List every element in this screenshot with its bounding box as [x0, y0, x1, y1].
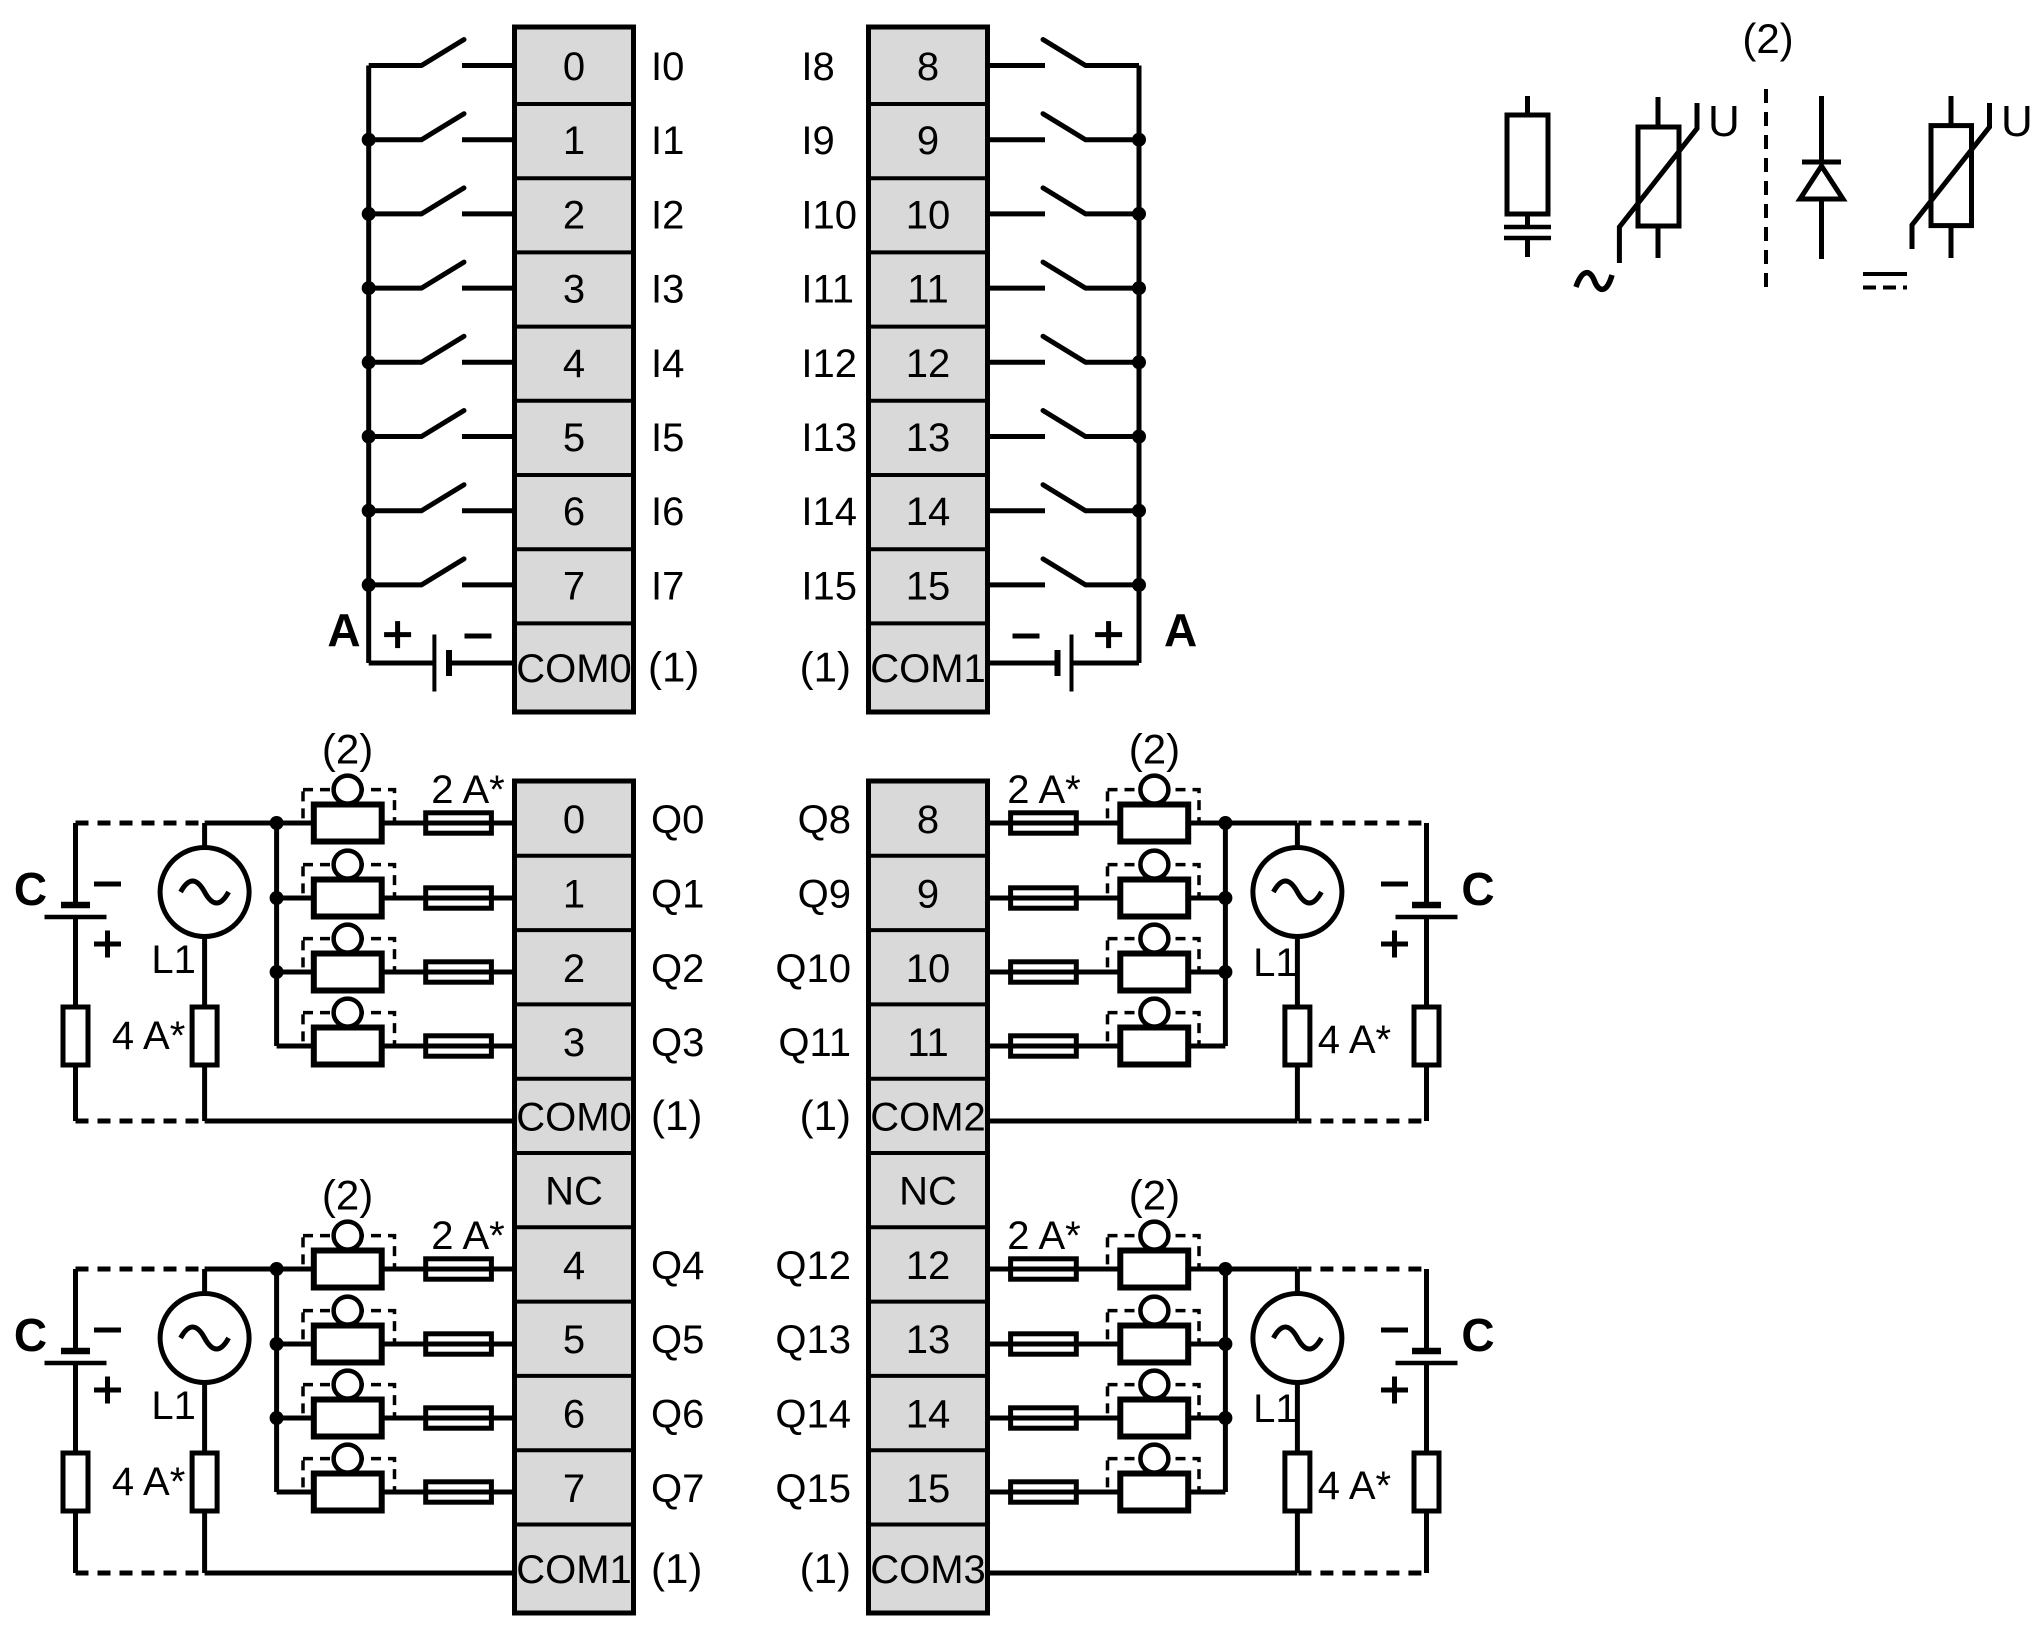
svg-text:A: A	[327, 604, 360, 656]
svg-text:Q12: Q12	[775, 1244, 851, 1288]
svg-text:Q3: Q3	[651, 1021, 704, 1065]
svg-text:8: 8	[917, 798, 939, 842]
svg-text:11: 11	[907, 1021, 949, 1065]
svg-text:NC: NC	[899, 1170, 957, 1214]
svg-text:(1): (1)	[800, 1545, 851, 1592]
svg-text:I8: I8	[801, 45, 834, 89]
svg-text:(2): (2)	[1742, 15, 1793, 62]
svg-text:2: 2	[563, 947, 585, 991]
svg-text:I2: I2	[651, 193, 684, 237]
svg-text:14: 14	[906, 490, 951, 534]
svg-text:4 A*: 4 A*	[112, 1014, 185, 1058]
svg-text:C: C	[1461, 1309, 1494, 1361]
svg-text:(2): (2)	[322, 726, 373, 773]
svg-text:I9: I9	[801, 119, 834, 163]
svg-text:I10: I10	[801, 193, 857, 237]
svg-text:4 A*: 4 A*	[1318, 1464, 1391, 1508]
svg-text:C: C	[1461, 863, 1494, 915]
svg-text:U: U	[2001, 97, 2033, 146]
svg-text:(1): (1)	[800, 644, 851, 691]
svg-text:9: 9	[917, 119, 939, 163]
svg-text:13: 13	[906, 416, 951, 460]
svg-text:L1: L1	[1253, 941, 1298, 985]
svg-text:COM1: COM1	[870, 647, 986, 691]
svg-text:1: 1	[563, 872, 585, 916]
svg-text:I5: I5	[651, 416, 684, 460]
svg-text:7: 7	[563, 1467, 585, 1511]
svg-text:4 A*: 4 A*	[1318, 1018, 1391, 1062]
svg-text:6: 6	[563, 490, 585, 534]
svg-text:2 A*: 2 A*	[431, 768, 504, 812]
svg-text:10: 10	[906, 947, 951, 991]
svg-text:2: 2	[563, 193, 585, 237]
svg-text:(1): (1)	[651, 1545, 702, 1592]
svg-text:I1: I1	[651, 119, 684, 163]
svg-text:COM2: COM2	[870, 1095, 986, 1139]
svg-text:Q5: Q5	[651, 1318, 704, 1362]
svg-text:10: 10	[906, 193, 951, 237]
svg-text:9: 9	[917, 872, 939, 916]
svg-text:(2): (2)	[322, 1172, 373, 1219]
svg-text:Q11: Q11	[778, 1021, 851, 1065]
svg-text:COM0: COM0	[516, 1095, 632, 1139]
svg-text:L1: L1	[151, 1384, 196, 1428]
svg-text:I13: I13	[801, 416, 857, 460]
svg-text:Q14: Q14	[775, 1393, 851, 1437]
svg-text:7: 7	[563, 564, 585, 608]
svg-text:2 A*: 2 A*	[431, 1214, 504, 1258]
svg-text:(1): (1)	[648, 644, 699, 691]
svg-text:12: 12	[906, 342, 951, 386]
svg-text:15: 15	[906, 564, 951, 608]
svg-text:13: 13	[906, 1318, 951, 1362]
svg-text:I6: I6	[651, 490, 684, 534]
svg-text:5: 5	[563, 1318, 585, 1362]
svg-text:Q9: Q9	[798, 872, 851, 916]
svg-text:Q2: Q2	[651, 947, 704, 991]
svg-text:I7: I7	[651, 564, 684, 608]
svg-text:I11: I11	[801, 268, 854, 312]
svg-text:0: 0	[563, 45, 585, 89]
svg-text:4: 4	[563, 342, 585, 386]
svg-text:A: A	[1164, 604, 1197, 656]
svg-text:Q4: Q4	[651, 1244, 704, 1288]
svg-text:6: 6	[563, 1393, 585, 1437]
svg-text:3: 3	[563, 1021, 585, 1065]
svg-text:I4: I4	[651, 342, 684, 386]
svg-text:15: 15	[906, 1467, 951, 1511]
svg-text:L1: L1	[1253, 1387, 1298, 1431]
svg-text:I0: I0	[651, 45, 684, 89]
svg-text:COM0: COM0	[516, 647, 632, 691]
svg-text:NC: NC	[545, 1170, 603, 1214]
svg-text:L1: L1	[151, 938, 196, 982]
svg-text:COM1: COM1	[516, 1548, 632, 1592]
svg-text:COM3: COM3	[870, 1548, 986, 1592]
svg-text:(2): (2)	[1129, 1172, 1180, 1219]
svg-text:I14: I14	[801, 490, 857, 534]
svg-text:Q7: Q7	[651, 1467, 704, 1511]
svg-text:8: 8	[917, 45, 939, 89]
svg-text:2 A*: 2 A*	[1007, 1214, 1080, 1258]
svg-text:Q1: Q1	[651, 872, 704, 916]
svg-text:4 A*: 4 A*	[112, 1460, 185, 1504]
svg-text:11: 11	[907, 268, 949, 312]
svg-text:4: 4	[563, 1244, 585, 1288]
svg-text:(1): (1)	[651, 1092, 702, 1139]
svg-text:Q0: Q0	[651, 798, 704, 842]
svg-text:3: 3	[563, 268, 585, 312]
svg-text:I12: I12	[801, 342, 857, 386]
svg-text:I15: I15	[801, 564, 857, 608]
svg-text:Q13: Q13	[775, 1318, 851, 1362]
svg-text:12: 12	[906, 1244, 951, 1288]
svg-text:U: U	[1708, 97, 1740, 146]
svg-text:5: 5	[563, 416, 585, 460]
svg-text:Q10: Q10	[775, 947, 851, 991]
svg-text:Q8: Q8	[798, 798, 851, 842]
svg-text:(2): (2)	[1129, 726, 1180, 773]
svg-text:14: 14	[906, 1393, 951, 1437]
svg-text:(1): (1)	[800, 1092, 851, 1139]
svg-text:I3: I3	[651, 268, 684, 312]
svg-text:0: 0	[563, 798, 585, 842]
svg-text:Q6: Q6	[651, 1393, 704, 1437]
svg-text:C: C	[14, 863, 47, 915]
svg-text:C: C	[14, 1309, 47, 1361]
svg-text:1: 1	[563, 119, 585, 163]
svg-text:Q15: Q15	[775, 1467, 851, 1511]
svg-text:2 A*: 2 A*	[1007, 768, 1080, 812]
